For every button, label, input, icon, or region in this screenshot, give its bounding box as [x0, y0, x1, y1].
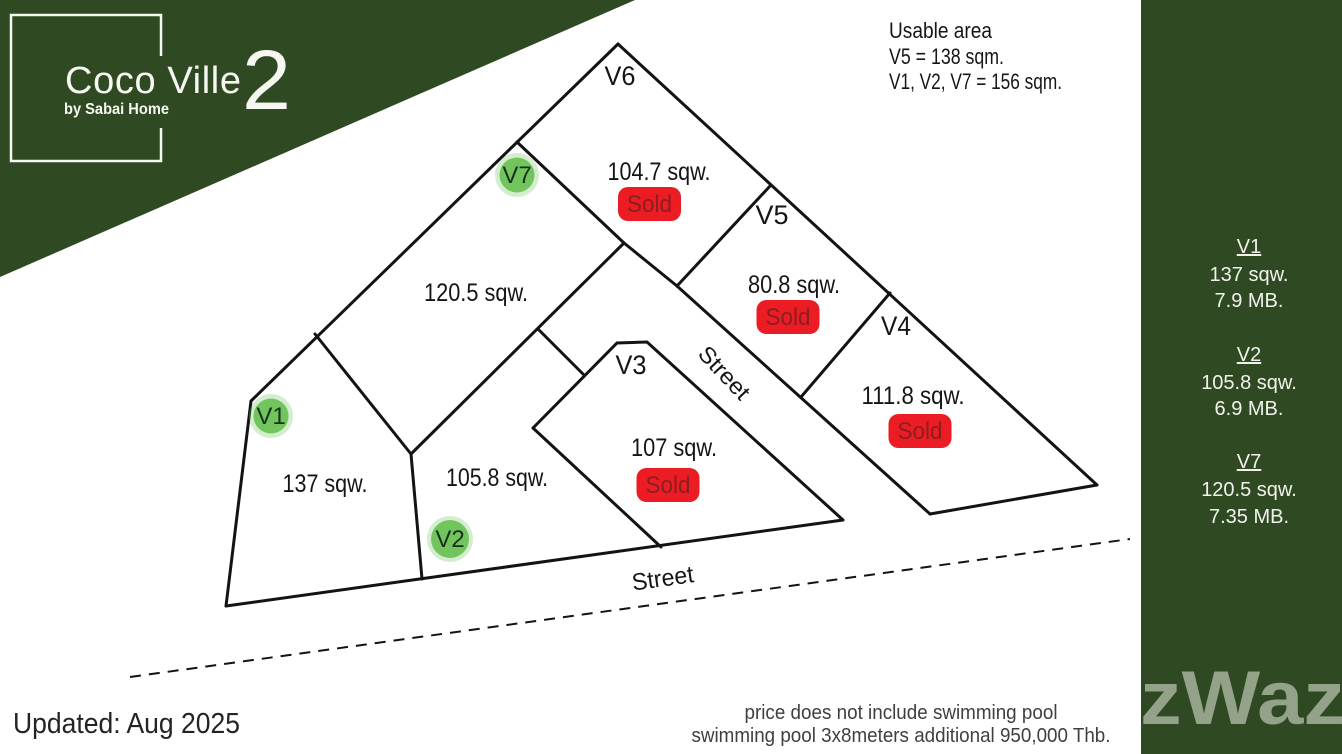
svg-text:V1: V1 — [1237, 236, 1261, 258]
svg-text:105.8 sqw.: 105.8 sqw. — [446, 464, 548, 492]
svg-text:120.5 sqw.: 120.5 sqw. — [424, 279, 528, 307]
svg-text:V2: V2 — [1237, 344, 1261, 366]
svg-text:137 sqw.: 137 sqw. — [283, 470, 368, 498]
svg-text:Sold: Sold — [646, 472, 691, 499]
svg-text:105.8 sqw.: 105.8 sqw. — [1201, 372, 1297, 394]
svg-text:7.35 MB.: 7.35 MB. — [1209, 506, 1289, 528]
svg-text:price does not include swimmin: price does not include swimming pool — [745, 701, 1058, 724]
svg-text:zWaz: zWaz — [1140, 656, 1342, 741]
svg-text:137 sqw.: 137 sqw. — [1210, 264, 1289, 286]
svg-text:Sold: Sold — [898, 418, 943, 445]
svg-text:2: 2 — [242, 33, 291, 127]
svg-text:6.9 MB.: 6.9 MB. — [1215, 398, 1284, 420]
svg-text:swimming pool 3x8meters additi: swimming pool 3x8meters additional 950,0… — [692, 724, 1111, 747]
svg-text:80.8 sqw.: 80.8 sqw. — [748, 271, 840, 299]
svg-text:V7: V7 — [1237, 451, 1261, 473]
svg-text:V1, V2, V7 = 156 sqm.: V1, V2, V7 = 156 sqm. — [889, 69, 1062, 94]
svg-text:V6: V6 — [605, 61, 636, 91]
svg-text:V3: V3 — [616, 350, 647, 380]
svg-text:7.9 MB.: 7.9 MB. — [1215, 290, 1284, 312]
svg-text:Coco Ville: Coco Ville — [65, 60, 241, 102]
svg-text:by Sabai Home: by Sabai Home — [64, 101, 169, 118]
svg-text:V7: V7 — [502, 162, 531, 189]
svg-text:120.5 sqw.: 120.5 sqw. — [1201, 479, 1297, 501]
svg-text:V2: V2 — [435, 526, 464, 553]
svg-text:104.7 sqw.: 104.7 sqw. — [608, 158, 711, 186]
svg-text:Sold: Sold — [766, 304, 811, 331]
svg-text:Usable area: Usable area — [889, 18, 993, 43]
svg-text:111.8 sqw.: 111.8 sqw. — [862, 382, 965, 410]
svg-text:Updated: Aug 2025: Updated: Aug 2025 — [13, 708, 240, 740]
svg-text:V1: V1 — [256, 403, 285, 430]
svg-text:V4: V4 — [881, 311, 911, 341]
svg-text:V5 = 138 sqm.: V5 = 138 sqm. — [889, 44, 1004, 69]
svg-text:Sold: Sold — [627, 191, 672, 218]
svg-text:107 sqw.: 107 sqw. — [631, 434, 717, 462]
svg-text:V5: V5 — [756, 200, 789, 230]
